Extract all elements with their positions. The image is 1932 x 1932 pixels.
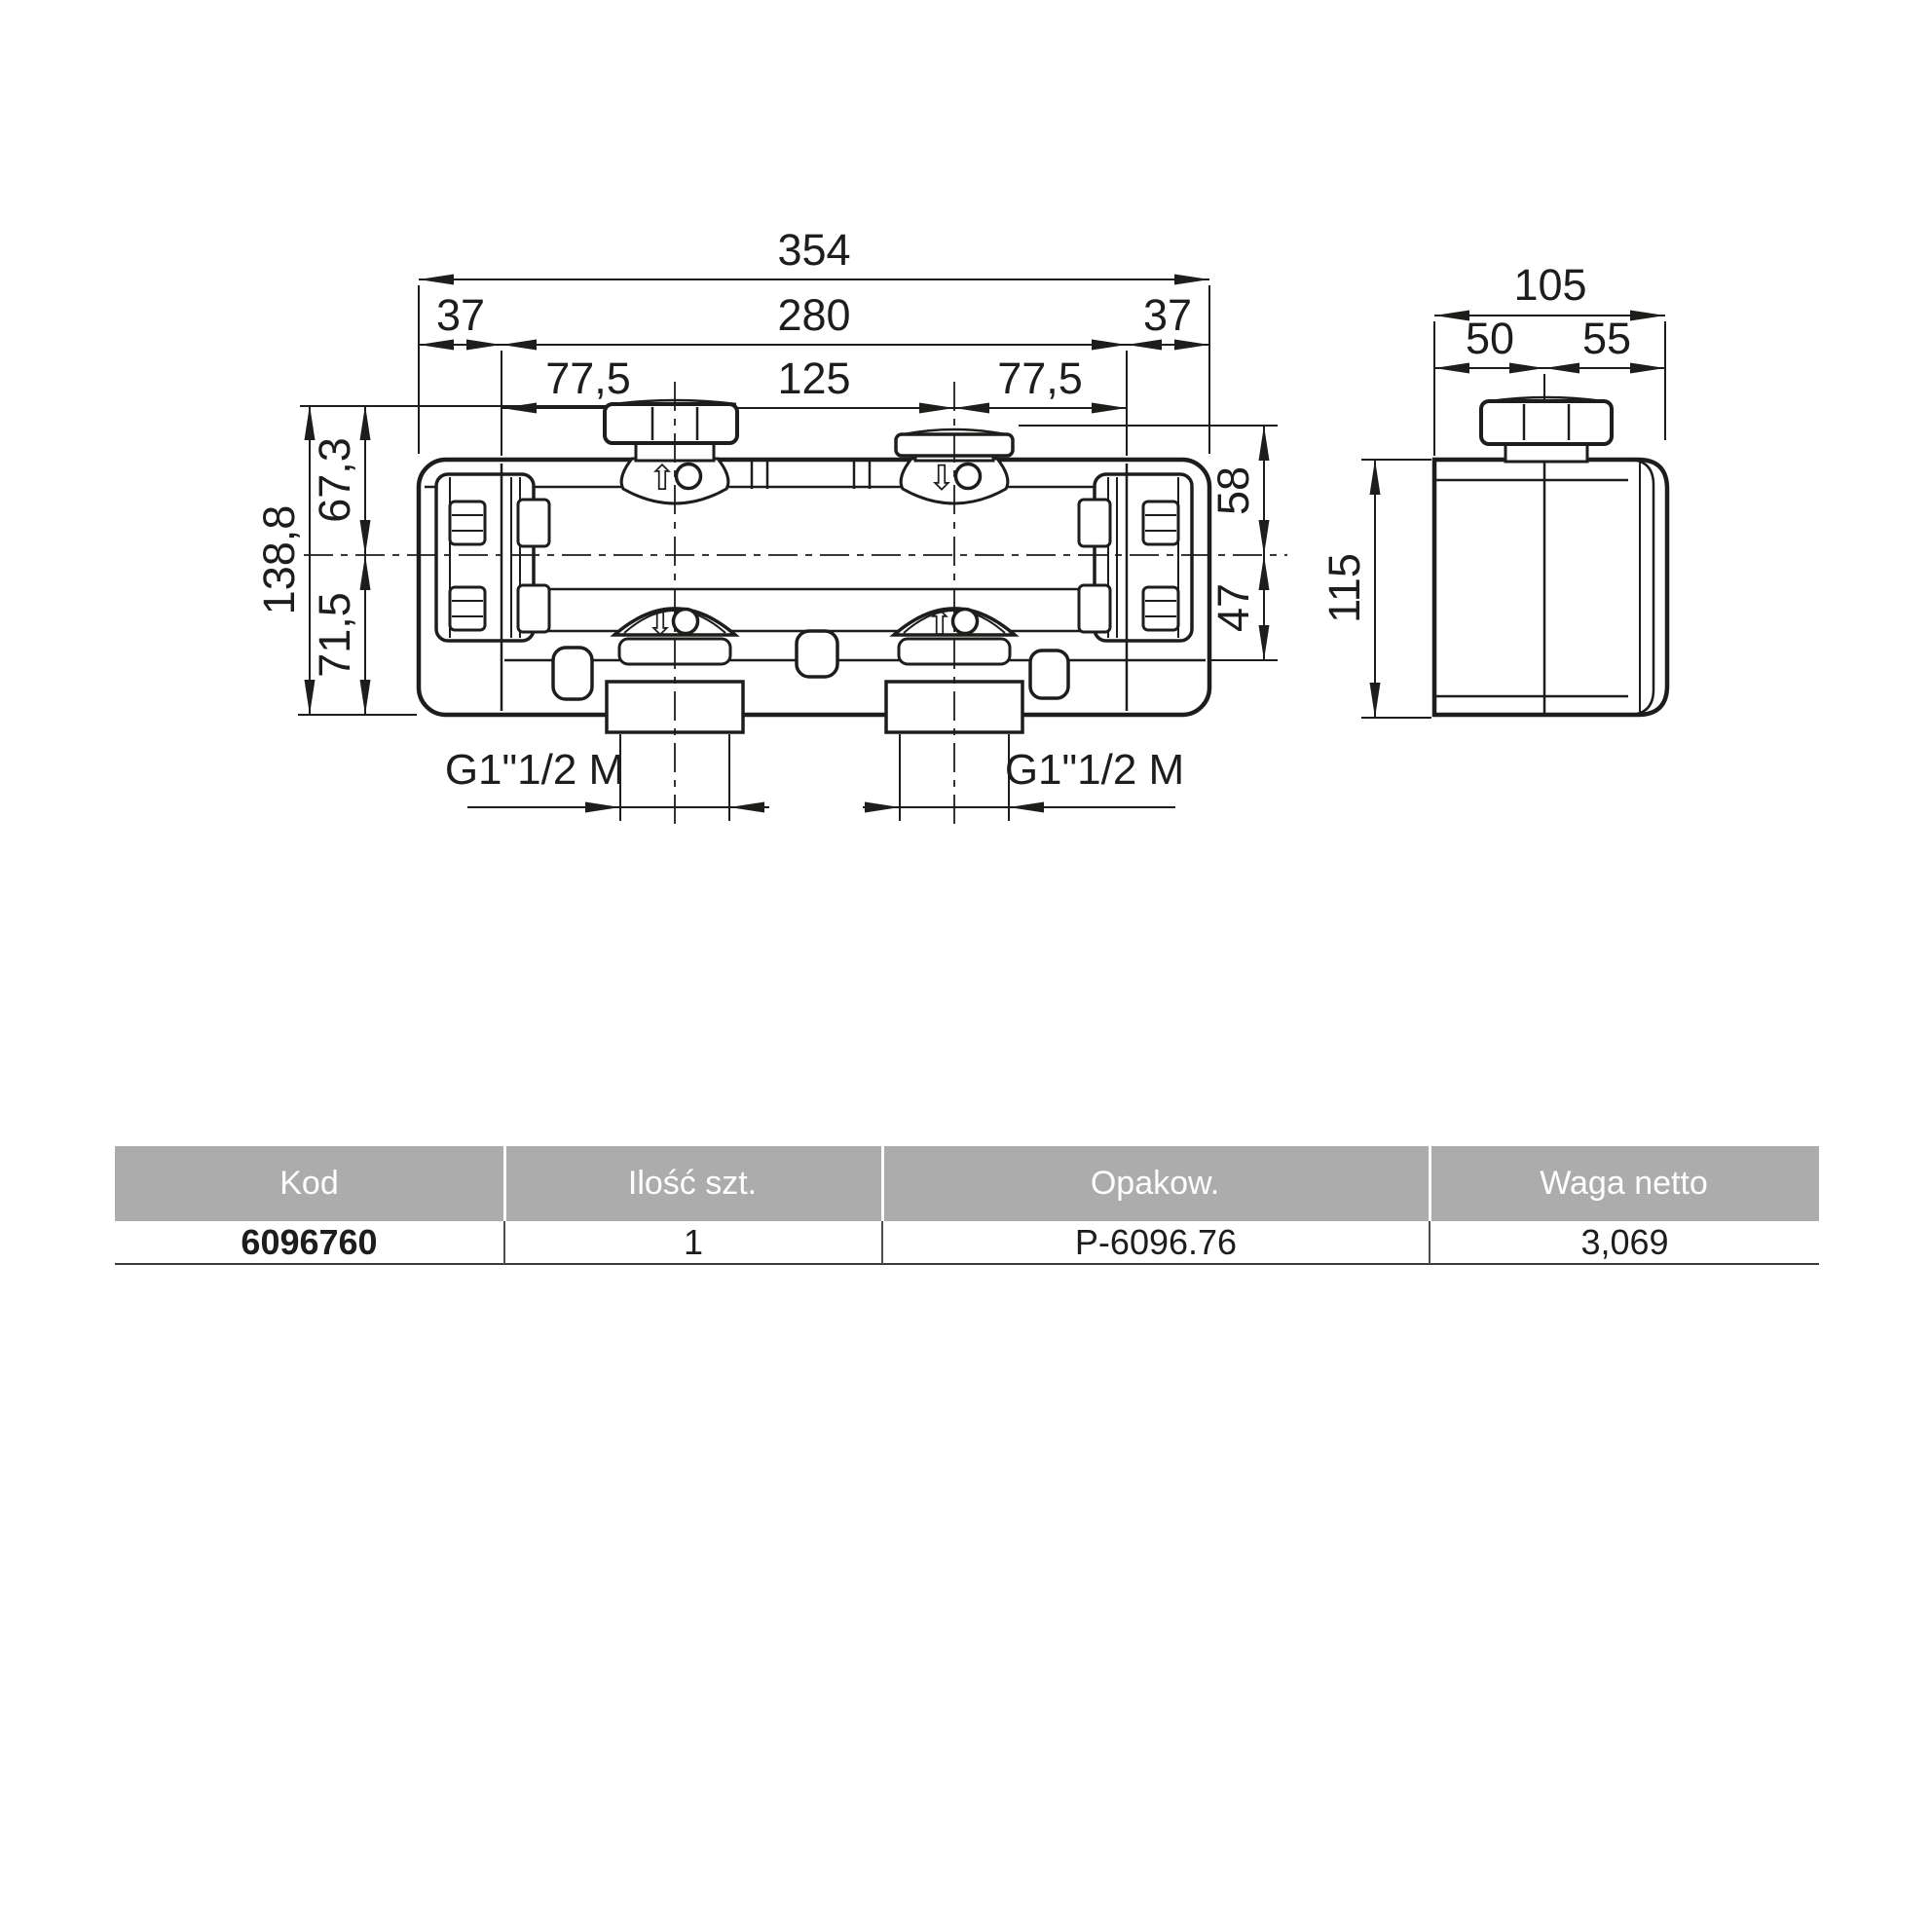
dim-height-total: 138,8 [254,505,304,615]
thread-label-left: G1"1/2 M [445,746,624,794]
dim-side-height: 115 [1319,553,1369,623]
dim-center-to-bottom: 71,5 [310,592,359,678]
table-cell-ilosc: 1 [503,1221,881,1265]
product-spec-table: Kod Ilość szt. Opakow. Waga netto 609676… [115,1146,1819,1265]
table-header-waga: Waga netto [1429,1146,1819,1221]
port-circle-icon [677,464,701,489]
flow-up-icon: ⇧ [648,459,677,499]
table-header-opakow: Opakow. [881,1146,1429,1221]
left-mounting-bracket [436,474,549,641]
table-header-kod: Kod [115,1146,503,1221]
flow-down-icon: ⇩ [927,459,956,499]
dim-port-offset-left: 77,5 [545,353,631,403]
dim-port-spacing: 125 [777,353,850,403]
thread-label-right: G1"1/2 M [1005,746,1184,794]
flow-down-icon: ⇩ [646,604,675,644]
dim-side-right: 37 [1143,290,1192,340]
technical-datasheet: ⇧ ⇩ ⇩ ⇧ [0,0,1932,1932]
flow-up-icon: ⇧ [925,604,954,644]
dimension-drawing: ⇧ ⇩ ⇩ ⇧ [0,0,1932,1932]
dim-center-to-top: 67,3 [310,437,359,523]
dim-depth-back: 55 [1582,314,1631,363]
table-cell-waga: 3,069 [1429,1221,1819,1265]
dim-center-width: 280 [777,290,850,340]
table-header-ilosc: Ilość szt. [503,1146,881,1221]
dim-total-width: 354 [777,225,850,275]
side-view-body [1434,397,1667,715]
dim-port-offset-right: 77,5 [997,353,1083,403]
table-cell-kod: 6096760 [115,1221,503,1265]
dim-side-left: 37 [436,290,485,340]
port-circle-icon [956,464,981,489]
table-cell-opakow: P-6096.76 [881,1221,1429,1265]
dim-center-to-base: 47 [1208,583,1258,632]
right-mounting-bracket [1079,474,1192,641]
dim-cap-to-center: 58 [1208,466,1258,515]
port-circle-icon [674,610,698,634]
dim-depth-total: 105 [1513,260,1586,310]
port-circle-icon [953,610,978,634]
dim-depth-front: 50 [1466,314,1514,363]
